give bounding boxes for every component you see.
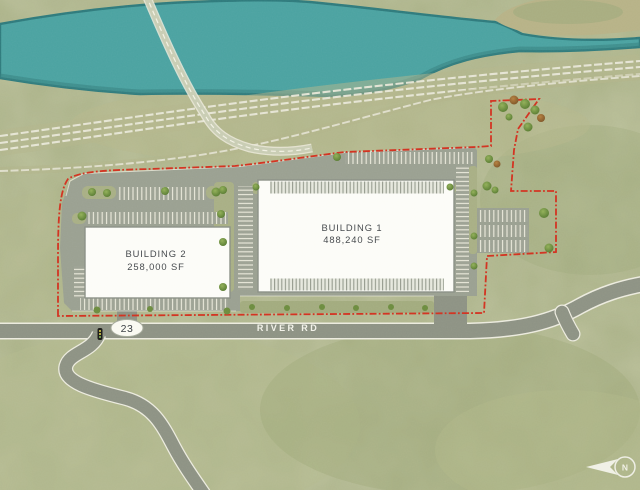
texture-overlay [0,0,640,490]
route-shield-icon: 23 [111,320,143,337]
road-name-label: RIVER RD [257,323,319,333]
site-plan-svg: BUILDING 1 488,240 SF BUILDING 2 258,000… [0,0,640,490]
route-number: 23 [121,323,134,335]
traffic-signal-icon [98,328,103,340]
north-label: N [622,463,628,473]
site-plan-map: BUILDING 1 488,240 SF BUILDING 2 258,000… [0,0,640,490]
